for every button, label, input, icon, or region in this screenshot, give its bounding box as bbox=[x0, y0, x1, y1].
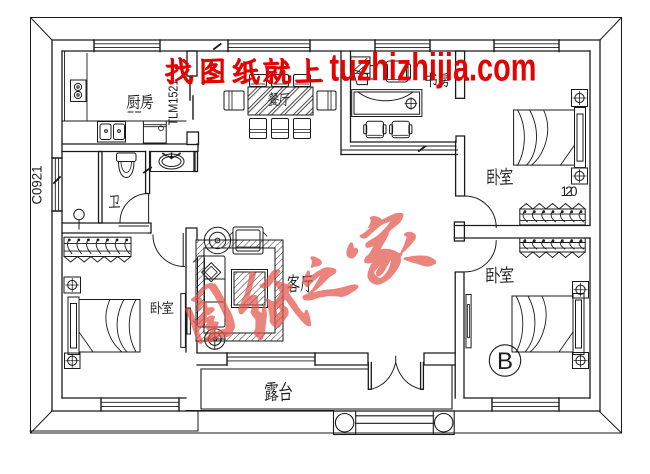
svg-text:B: B bbox=[497, 348, 513, 375]
svg-text:tuzhizhijia.com: tuzhizhijia.com bbox=[330, 47, 537, 90]
svg-text:120: 120 bbox=[561, 184, 578, 199]
svg-text:C0921: C0921 bbox=[30, 166, 45, 205]
svg-text:TLM1521: TLM1521 bbox=[166, 80, 181, 126]
